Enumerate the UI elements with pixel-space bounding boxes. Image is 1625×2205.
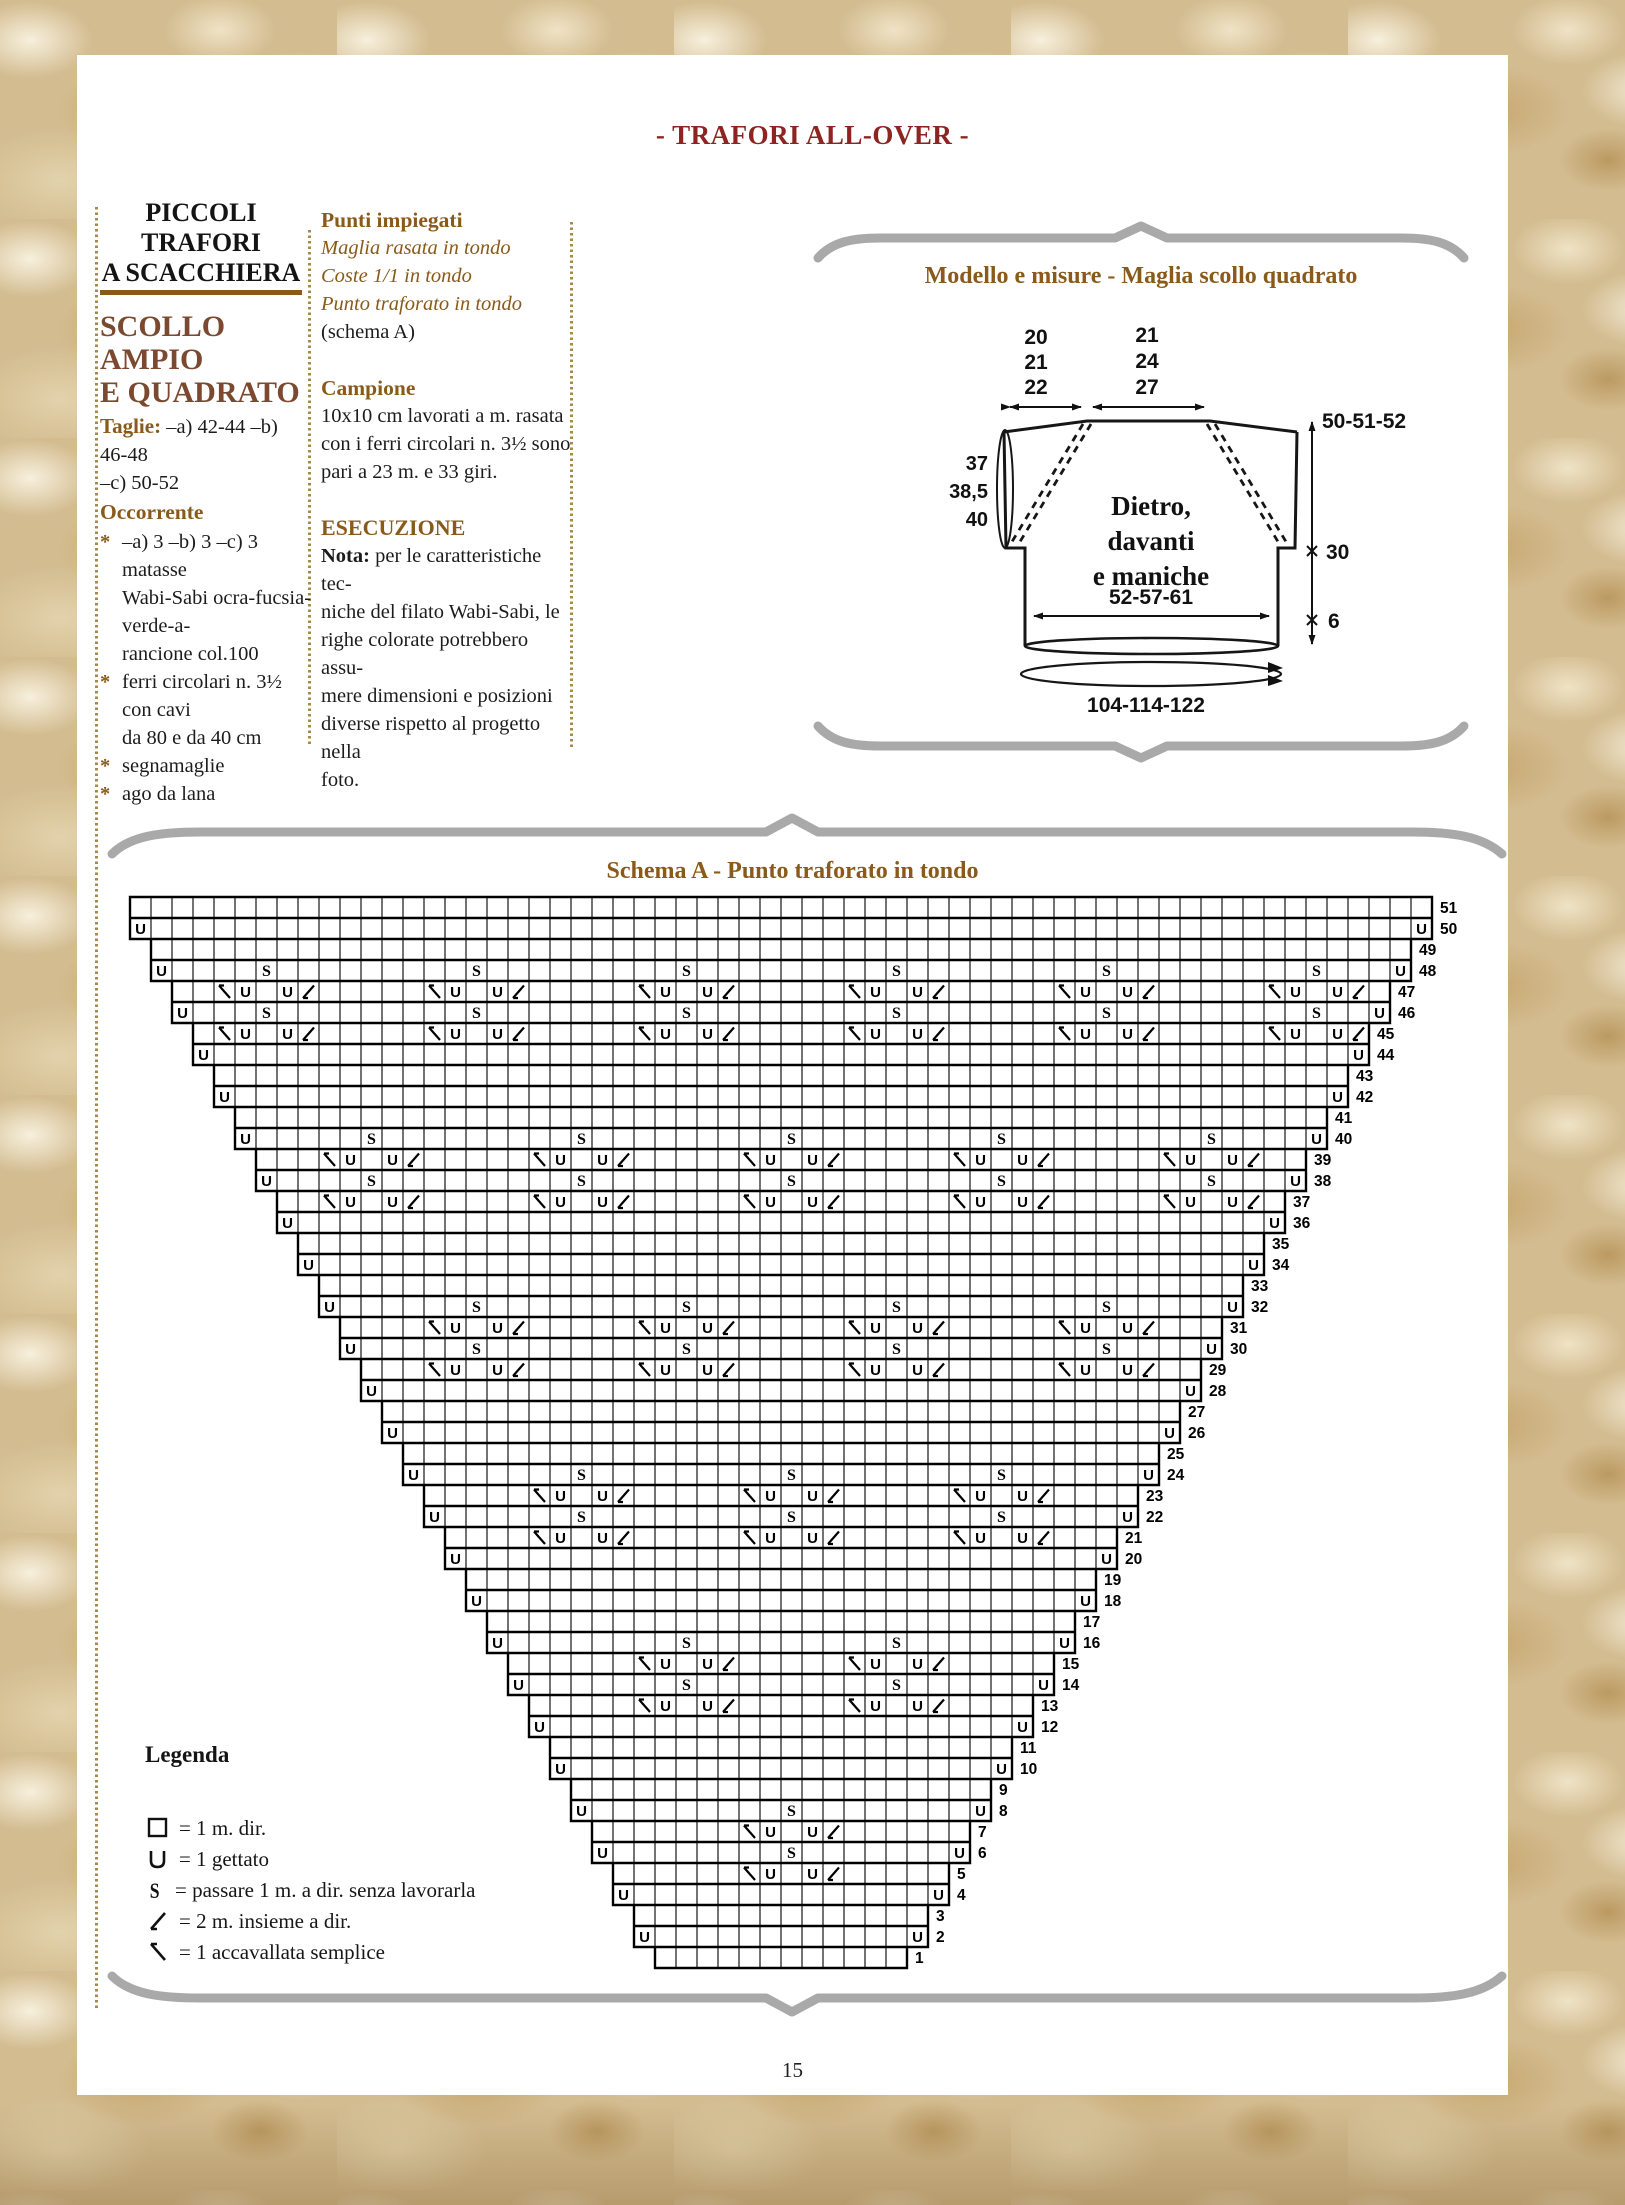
svg-text:U: U bbox=[912, 1698, 923, 1715]
svg-text:U: U bbox=[975, 1194, 986, 1211]
svg-text:U: U bbox=[912, 1026, 923, 1043]
svg-text:U: U bbox=[555, 1152, 566, 1169]
svg-text:S: S bbox=[787, 1845, 796, 1862]
svg-text:39: 39 bbox=[1314, 1152, 1332, 1169]
svg-text:17: 17 bbox=[1083, 1614, 1100, 1631]
svg-text:U: U bbox=[1122, 1026, 1133, 1043]
svg-text:U: U bbox=[597, 1488, 608, 1505]
svg-text:U: U bbox=[555, 1488, 566, 1505]
svg-text:U: U bbox=[1122, 1320, 1133, 1337]
svg-text:S: S bbox=[577, 1467, 586, 1484]
svg-text:5: 5 bbox=[957, 1866, 966, 1883]
svg-text:49: 49 bbox=[1419, 942, 1437, 959]
svg-text:S: S bbox=[1312, 1005, 1321, 1022]
svg-text:U: U bbox=[1080, 1320, 1091, 1337]
svg-text:S: S bbox=[892, 1299, 901, 1316]
svg-text:U: U bbox=[471, 1593, 482, 1610]
svg-text:S: S bbox=[997, 1173, 1006, 1190]
svg-text:U: U bbox=[555, 1761, 566, 1778]
svg-text:U: U bbox=[240, 1131, 251, 1148]
svg-text:U: U bbox=[870, 1320, 881, 1337]
svg-text:31: 31 bbox=[1230, 1320, 1248, 1337]
svg-text:U: U bbox=[1080, 1362, 1091, 1379]
svg-text:U: U bbox=[660, 1362, 671, 1379]
svg-text:U: U bbox=[1248, 1257, 1259, 1274]
svg-text:S: S bbox=[997, 1467, 1006, 1484]
svg-text:13: 13 bbox=[1041, 1698, 1059, 1715]
svg-text:U: U bbox=[1290, 984, 1301, 1001]
svg-text:U: U bbox=[219, 1089, 230, 1106]
svg-text:S: S bbox=[577, 1131, 586, 1148]
svg-text:U: U bbox=[975, 1530, 986, 1547]
svg-text:12: 12 bbox=[1041, 1719, 1058, 1736]
svg-text:U: U bbox=[1290, 1026, 1301, 1043]
svg-text:S: S bbox=[997, 1131, 1006, 1148]
svg-text:U: U bbox=[660, 1656, 671, 1673]
svg-text:U: U bbox=[870, 1026, 881, 1043]
svg-text:40: 40 bbox=[1335, 1131, 1352, 1148]
svg-text:U: U bbox=[1185, 1152, 1196, 1169]
svg-text:U: U bbox=[198, 1047, 209, 1064]
svg-text:S: S bbox=[1207, 1131, 1216, 1148]
svg-text:S: S bbox=[682, 1635, 691, 1652]
svg-text:S: S bbox=[1102, 1341, 1111, 1358]
svg-text:U: U bbox=[1227, 1152, 1238, 1169]
svg-text:22: 22 bbox=[1146, 1509, 1163, 1526]
svg-text:U: U bbox=[765, 1488, 776, 1505]
svg-text:25: 25 bbox=[1167, 1446, 1185, 1463]
svg-text:35: 35 bbox=[1272, 1236, 1290, 1253]
svg-text:U: U bbox=[807, 1194, 818, 1211]
svg-text:S: S bbox=[577, 1173, 586, 1190]
svg-text:S: S bbox=[892, 1635, 901, 1652]
magazine-page: - TRAFORI ALL-OVER - PICCOLI TRAFORI A S… bbox=[0, 0, 1625, 2205]
svg-text:U: U bbox=[1395, 963, 1406, 980]
svg-text:U: U bbox=[240, 1026, 251, 1043]
chart-gridlines bbox=[151, 897, 1411, 1968]
svg-text:41: 41 bbox=[1335, 1110, 1353, 1127]
svg-text:U: U bbox=[555, 1194, 566, 1211]
svg-text:U: U bbox=[660, 1698, 671, 1715]
svg-text:U: U bbox=[954, 1845, 965, 1862]
svg-text:U: U bbox=[282, 984, 293, 1001]
svg-text:U: U bbox=[1227, 1299, 1238, 1316]
legend-item-text: = passare 1 m. a dir. senza lavorarla bbox=[175, 1878, 475, 1903]
svg-text:U: U bbox=[261, 1173, 272, 1190]
legend-item-text: = 2 m. insieme a dir. bbox=[179, 1909, 351, 1934]
page-bottom-bracket bbox=[112, 1976, 1502, 2012]
svg-text:U: U bbox=[1332, 984, 1343, 1001]
svg-text:14: 14 bbox=[1062, 1677, 1080, 1694]
svg-text:U: U bbox=[387, 1152, 398, 1169]
svg-text:38: 38 bbox=[1314, 1173, 1332, 1190]
svg-text:U: U bbox=[933, 1887, 944, 1904]
svg-text:U: U bbox=[807, 1152, 818, 1169]
svg-text:U: U bbox=[1059, 1635, 1070, 1652]
svg-text:U: U bbox=[1227, 1194, 1238, 1211]
legend-item: = 2 m. insieme a dir. bbox=[145, 1907, 351, 1935]
svg-text:S: S bbox=[472, 1299, 481, 1316]
svg-text:51: 51 bbox=[1440, 900, 1458, 917]
svg-text:S: S bbox=[1312, 963, 1321, 980]
svg-text:U: U bbox=[1017, 1194, 1028, 1211]
svg-text:32: 32 bbox=[1251, 1299, 1268, 1316]
legend: Legenda = 1 m. dir. = 1 gettato S = pass… bbox=[145, 1742, 229, 1768]
svg-text:U: U bbox=[1101, 1551, 1112, 1568]
svg-text:16: 16 bbox=[1083, 1635, 1101, 1652]
svg-text:U: U bbox=[912, 1656, 923, 1673]
svg-text:S: S bbox=[892, 1005, 901, 1022]
svg-text:20: 20 bbox=[1125, 1551, 1142, 1568]
svg-text:U: U bbox=[702, 984, 713, 1001]
svg-text:U: U bbox=[366, 1383, 377, 1400]
svg-text:6: 6 bbox=[978, 1845, 987, 1862]
svg-text:U: U bbox=[1311, 1131, 1322, 1148]
svg-text:29: 29 bbox=[1209, 1362, 1227, 1379]
legend-item-text: = 1 gettato bbox=[179, 1847, 269, 1872]
svg-text:U: U bbox=[1374, 1005, 1385, 1022]
svg-text:S: S bbox=[682, 1677, 691, 1694]
chart-symbols: 51UU5049UUSSSSSS48UUUUUUUUUUUU47UUSSSSSS… bbox=[135, 900, 1458, 1967]
svg-text:U: U bbox=[303, 1257, 314, 1274]
svg-text:U: U bbox=[807, 1488, 818, 1505]
svg-text:U: U bbox=[576, 1803, 587, 1820]
svg-text:U: U bbox=[660, 1026, 671, 1043]
svg-text:S: S bbox=[787, 1803, 796, 1820]
svg-text:S: S bbox=[682, 1299, 691, 1316]
svg-text:U: U bbox=[702, 1026, 713, 1043]
svg-text:U: U bbox=[345, 1152, 356, 1169]
svg-text:S: S bbox=[787, 1509, 796, 1526]
svg-text:U: U bbox=[534, 1719, 545, 1736]
svg-text:U: U bbox=[240, 984, 251, 1001]
svg-text:U: U bbox=[1353, 1047, 1364, 1064]
svg-text:21: 21 bbox=[1125, 1530, 1143, 1547]
svg-text:U: U bbox=[450, 1026, 461, 1043]
svg-text:U: U bbox=[765, 1530, 776, 1547]
svg-text:U: U bbox=[618, 1887, 629, 1904]
svg-text:15: 15 bbox=[1062, 1656, 1080, 1673]
svg-text:U: U bbox=[702, 1698, 713, 1715]
svg-text:S: S bbox=[1102, 1005, 1111, 1022]
svg-text:U: U bbox=[450, 1320, 461, 1337]
legend-title: Legenda bbox=[145, 1742, 229, 1768]
svg-text:S: S bbox=[577, 1509, 586, 1526]
svg-text:U: U bbox=[807, 1530, 818, 1547]
svg-text:S: S bbox=[892, 963, 901, 980]
svg-text:U: U bbox=[1164, 1425, 1175, 1442]
svg-text:U: U bbox=[870, 984, 881, 1001]
svg-text:U: U bbox=[1143, 1467, 1154, 1484]
svg-text:U: U bbox=[1038, 1677, 1049, 1694]
svg-text:33: 33 bbox=[1251, 1278, 1269, 1295]
svg-text:U: U bbox=[408, 1467, 419, 1484]
svg-text:23: 23 bbox=[1146, 1488, 1164, 1505]
svg-text:U: U bbox=[1206, 1341, 1217, 1358]
svg-text:S: S bbox=[682, 963, 691, 980]
legend-item: = 1 m. dir. bbox=[145, 1814, 266, 1842]
svg-text:U: U bbox=[702, 1656, 713, 1673]
svg-text:U: U bbox=[1332, 1026, 1343, 1043]
svg-text:U: U bbox=[765, 1194, 776, 1211]
svg-text:U: U bbox=[660, 1320, 671, 1337]
svg-text:U: U bbox=[807, 1824, 818, 1841]
svg-text:8: 8 bbox=[999, 1803, 1008, 1820]
svg-text:U: U bbox=[282, 1215, 293, 1232]
knit-square-icon bbox=[145, 1815, 171, 1841]
svg-text:U: U bbox=[177, 1005, 188, 1022]
schema-top-bracket bbox=[112, 818, 1502, 854]
slip-stitch-icon: S bbox=[145, 1877, 167, 1903]
svg-text:U: U bbox=[1185, 1194, 1196, 1211]
svg-text:S: S bbox=[682, 1005, 691, 1022]
svg-text:U: U bbox=[870, 1362, 881, 1379]
svg-text:S: S bbox=[1102, 1299, 1111, 1316]
svg-text:S: S bbox=[150, 1879, 160, 1903]
legend-item-text: = 1 m. dir. bbox=[179, 1816, 266, 1841]
svg-text:U: U bbox=[1290, 1173, 1301, 1190]
svg-text:42: 42 bbox=[1356, 1089, 1373, 1106]
svg-text:U: U bbox=[807, 1866, 818, 1883]
svg-text:U: U bbox=[345, 1341, 356, 1358]
svg-text:4: 4 bbox=[957, 1887, 966, 1904]
svg-text:S: S bbox=[367, 1131, 376, 1148]
chart-skp-symbols bbox=[219, 986, 1280, 1881]
svg-text:U: U bbox=[1017, 1719, 1028, 1736]
svg-text:S: S bbox=[1102, 963, 1111, 980]
svg-text:U: U bbox=[1122, 1362, 1133, 1379]
svg-text:11: 11 bbox=[1020, 1740, 1037, 1757]
svg-text:U: U bbox=[450, 984, 461, 1001]
svg-text:U: U bbox=[597, 1152, 608, 1169]
svg-text:U: U bbox=[1017, 1488, 1028, 1505]
svg-text:U: U bbox=[765, 1866, 776, 1883]
svg-text:U: U bbox=[1269, 1215, 1280, 1232]
svg-text:S: S bbox=[787, 1173, 796, 1190]
svg-text:U: U bbox=[597, 1845, 608, 1862]
svg-text:U: U bbox=[975, 1803, 986, 1820]
legend-item: = 1 gettato bbox=[145, 1845, 269, 1873]
svg-text:U: U bbox=[765, 1824, 776, 1841]
svg-text:48: 48 bbox=[1419, 963, 1437, 980]
svg-text:S: S bbox=[367, 1173, 376, 1190]
svg-text:2: 2 bbox=[936, 1929, 945, 1946]
svg-text:U: U bbox=[912, 984, 923, 1001]
svg-text:34: 34 bbox=[1272, 1257, 1290, 1274]
svg-text:30: 30 bbox=[1230, 1341, 1247, 1358]
svg-text:U: U bbox=[660, 984, 671, 1001]
skp-icon bbox=[145, 1939, 171, 1965]
svg-text:U: U bbox=[912, 1320, 923, 1337]
svg-text:44: 44 bbox=[1377, 1047, 1395, 1064]
svg-text:U: U bbox=[450, 1362, 461, 1379]
legend-item-text: = 1 accavallata semplice bbox=[179, 1940, 385, 1965]
svg-text:S: S bbox=[787, 1131, 796, 1148]
svg-text:U: U bbox=[1080, 984, 1091, 1001]
svg-text:S: S bbox=[1207, 1173, 1216, 1190]
svg-text:U: U bbox=[492, 1635, 503, 1652]
svg-text:U: U bbox=[702, 1320, 713, 1337]
svg-text:S: S bbox=[892, 1341, 901, 1358]
svg-text:U: U bbox=[870, 1698, 881, 1715]
legend-item: S = passare 1 m. a dir. senza lavorarla bbox=[145, 1876, 475, 1904]
svg-text:S: S bbox=[682, 1341, 691, 1358]
svg-text:U: U bbox=[639, 1929, 650, 1946]
svg-text:U: U bbox=[912, 1929, 923, 1946]
svg-text:50: 50 bbox=[1440, 921, 1457, 938]
yarnover-icon bbox=[145, 1846, 171, 1872]
svg-text:S: S bbox=[472, 1005, 481, 1022]
svg-text:45: 45 bbox=[1377, 1026, 1395, 1043]
svg-text:U: U bbox=[1416, 921, 1427, 938]
svg-text:19: 19 bbox=[1104, 1572, 1122, 1589]
k2tog-icon bbox=[145, 1908, 171, 1934]
svg-text:U: U bbox=[1122, 1509, 1133, 1526]
svg-text:U: U bbox=[387, 1194, 398, 1211]
svg-text:U: U bbox=[450, 1551, 461, 1568]
svg-text:U: U bbox=[513, 1677, 524, 1694]
svg-text:47: 47 bbox=[1398, 984, 1415, 1001]
svg-text:U: U bbox=[492, 1362, 503, 1379]
svg-text:U: U bbox=[912, 1362, 923, 1379]
svg-text:28: 28 bbox=[1209, 1383, 1227, 1400]
svg-text:U: U bbox=[1185, 1383, 1196, 1400]
svg-text:S: S bbox=[472, 963, 481, 980]
legend-item: = 1 accavallata semplice bbox=[145, 1938, 385, 1966]
knitting-chart: 51UU5049UUSSSSSS48UUUUUUUUUUUU47UUSSSSSS… bbox=[0, 0, 1625, 2205]
svg-text:U: U bbox=[1332, 1089, 1343, 1106]
svg-text:U: U bbox=[135, 921, 146, 938]
svg-text:U: U bbox=[156, 963, 167, 980]
svg-text:U: U bbox=[975, 1488, 986, 1505]
svg-text:10: 10 bbox=[1020, 1761, 1037, 1778]
svg-text:18: 18 bbox=[1104, 1593, 1122, 1610]
svg-text:U: U bbox=[597, 1530, 608, 1547]
svg-text:U: U bbox=[996, 1761, 1007, 1778]
svg-text:U: U bbox=[1080, 1593, 1091, 1610]
svg-text:U: U bbox=[492, 1026, 503, 1043]
svg-text:S: S bbox=[262, 963, 271, 980]
svg-text:U: U bbox=[1017, 1530, 1028, 1547]
svg-text:U: U bbox=[1122, 984, 1133, 1001]
svg-text:U: U bbox=[345, 1194, 356, 1211]
svg-text:U: U bbox=[1080, 1026, 1091, 1043]
svg-text:U: U bbox=[282, 1026, 293, 1043]
svg-text:U: U bbox=[555, 1530, 566, 1547]
svg-text:3: 3 bbox=[936, 1908, 945, 1925]
svg-text:U: U bbox=[975, 1152, 986, 1169]
svg-text:U: U bbox=[387, 1425, 398, 1442]
svg-text:U: U bbox=[765, 1152, 776, 1169]
page-number: 15 bbox=[0, 2058, 1585, 2083]
svg-text:36: 36 bbox=[1293, 1215, 1311, 1232]
svg-text:37: 37 bbox=[1293, 1194, 1310, 1211]
svg-text:U: U bbox=[702, 1362, 713, 1379]
svg-text:U: U bbox=[597, 1194, 608, 1211]
svg-text:S: S bbox=[472, 1341, 481, 1358]
svg-text:U: U bbox=[492, 1320, 503, 1337]
svg-text:43: 43 bbox=[1356, 1068, 1374, 1085]
svg-text:24: 24 bbox=[1167, 1467, 1185, 1484]
svg-text:1: 1 bbox=[915, 1950, 924, 1967]
svg-text:9: 9 bbox=[999, 1782, 1008, 1799]
svg-text:U: U bbox=[492, 984, 503, 1001]
svg-text:S: S bbox=[262, 1005, 271, 1022]
svg-text:26: 26 bbox=[1188, 1425, 1206, 1442]
svg-text:27: 27 bbox=[1188, 1404, 1205, 1421]
svg-text:7: 7 bbox=[978, 1824, 987, 1841]
svg-text:S: S bbox=[892, 1677, 901, 1694]
svg-text:U: U bbox=[429, 1509, 440, 1526]
svg-text:U: U bbox=[1017, 1152, 1028, 1169]
svg-text:S: S bbox=[787, 1467, 796, 1484]
svg-text:U: U bbox=[324, 1299, 335, 1316]
svg-text:S: S bbox=[997, 1509, 1006, 1526]
svg-text:U: U bbox=[870, 1656, 881, 1673]
svg-text:46: 46 bbox=[1398, 1005, 1416, 1022]
